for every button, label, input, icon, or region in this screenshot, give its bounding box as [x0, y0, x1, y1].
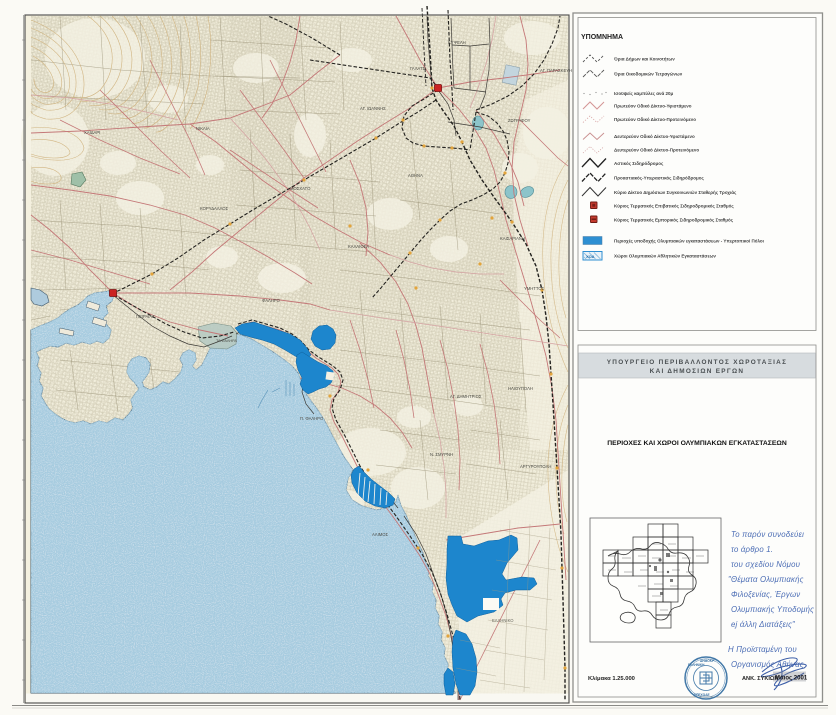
svg-text:ΥΠΟΥΡΓΕΙΟ ΠΕΡΙΒΑΛΛΟΝΤΟΣ ΧΩΡΟΤΑ: ΥΠΟΥΡΓΕΙΟ ΠΕΡΙΒΑΛΛΟΝΤΟΣ ΧΩΡΟΤΑΞΙΑΣ — [607, 359, 787, 366]
svg-text:Η Προϊσταμένη του: Η Προϊσταμένη του — [728, 645, 797, 654]
svg-text:ΕΛΛΗΝΙΚΗ: ΕΛΛΗΝΙΚΗ — [688, 663, 705, 667]
svg-text:Χώροι Ολυμπιακών Αθλητικών Εγκ: Χώροι Ολυμπιακών Αθλητικών Εγκαταστάσεων — [614, 254, 716, 259]
svg-text:Όρια Δήμων και Κοινοτήτων: Όρια Δήμων και Κοινοτήτων — [613, 57, 675, 62]
svg-text:Δευτερεύον Οδικό Δίκτυο-Προτει: Δευτερεύον Οδικό Δίκτυο-Προτεινόμενο — [614, 148, 699, 153]
svg-text:"Θέματα Ολυμπιακής: "Θέματα Ολυμπιακής — [728, 575, 804, 584]
svg-text:του σχεδίου Νόμου: του σχεδίου Νόμου — [731, 560, 800, 569]
svg-text:Μάιος 2001: Μάιος 2001 — [775, 676, 808, 682]
svg-text:Ολυμπιακής Υποδομής: Ολυμπιακής Υποδομής — [731, 605, 814, 614]
svg-text:ΥΠΕΧΩΔΕ: ΥΠΕΧΩΔΕ — [694, 693, 710, 697]
svg-text:ΔΗΜΟΚΡ.: ΔΗΜΟΚΡ. — [700, 659, 715, 663]
svg-text:ΠΕΡΙΟΧΕΣ ΚΑΙ ΧΩΡΟΙ ΟΛΥΜΠΙΑΚΩΝ: ΠΕΡΙΟΧΕΣ ΚΑΙ ΧΩΡΟΙ ΟΛΥΜΠΙΑΚΩΝ ΕΓΚΑΤΑΣΤΑΣ… — [607, 440, 787, 447]
svg-text:Πρωτεύον Οδικό Δίκτυο-Υφιστάμε: Πρωτεύον Οδικό Δίκτυο-Υφιστάμενο — [614, 104, 692, 109]
svg-text:το άρθρο 1.: το άρθρο 1. — [731, 545, 773, 554]
svg-text:Κλίμακα 1.25.000: Κλίμακα 1.25.000 — [588, 676, 635, 682]
svg-text:ΥΠΟΜΝΗΜΑ: ΥΠΟΜΝΗΜΑ — [581, 34, 623, 41]
svg-text:ΚΑΙ ΔΗΜΟΣΙΩΝ ΕΡΓΩΝ: ΚΑΙ ΔΗΜΟΣΙΩΝ ΕΡΓΩΝ — [650, 368, 745, 375]
svg-text:Το παρόν συνοδεύει: Το παρόν συνοδεύει — [731, 530, 804, 539]
svg-text:Όρια Οικοδομικών Τετραγώνων: Όρια Οικοδομικών Τετραγώνων — [613, 72, 683, 77]
svg-text:Φιλοξενίας, Έργων: Φιλοξενίας, Έργων — [731, 590, 800, 599]
svg-text:ΧΟΑ: ΧΟΑ — [586, 254, 595, 259]
svg-text:Δευτερεύον Οδικό Δίκτυο-Υφιστά: Δευτερεύον Οδικό Δίκτυο-Υφιστάμενο — [614, 134, 695, 139]
svg-text:Πρωτεύον Οδικό Δίκτυο-Προτεινό: Πρωτεύον Οδικό Δίκτυο-Προτεινόμενο — [614, 117, 696, 122]
svg-text:ej άλλη Διατάξεις": ej άλλη Διατάξεις" — [731, 620, 796, 629]
svg-text:ΑΝΚ. ΣΥΚΙΩΝ: ΑΝΚ. ΣΥΚΙΩΝ — [742, 676, 778, 682]
